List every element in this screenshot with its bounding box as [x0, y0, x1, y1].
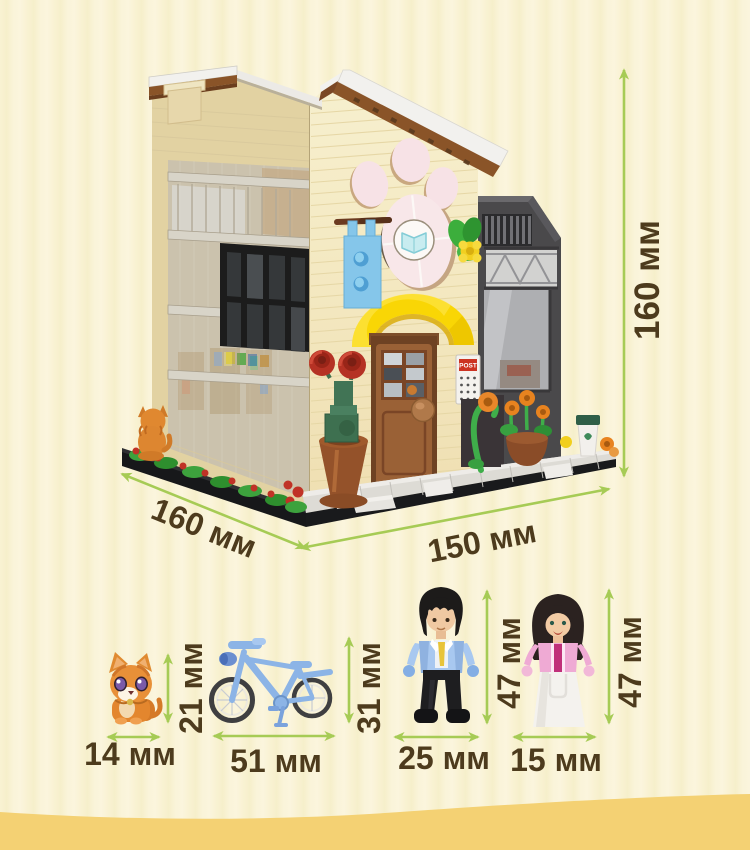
svg-text:POST: POST: [459, 363, 477, 370]
svg-text:21 мм: 21 мм: [173, 642, 209, 734]
svg-text:47 мм: 47 мм: [612, 616, 648, 708]
svg-text:14 мм: 14 мм: [84, 736, 176, 772]
svg-text:15 мм: 15 мм: [510, 742, 602, 778]
svg-text:160 мм: 160 мм: [628, 220, 667, 340]
svg-text:47 мм: 47 мм: [491, 617, 527, 709]
svg-text:31 мм: 31 мм: [351, 642, 387, 734]
svg-text:25 мм: 25 мм: [398, 740, 490, 776]
svg-text:51 мм: 51 мм: [230, 743, 322, 779]
